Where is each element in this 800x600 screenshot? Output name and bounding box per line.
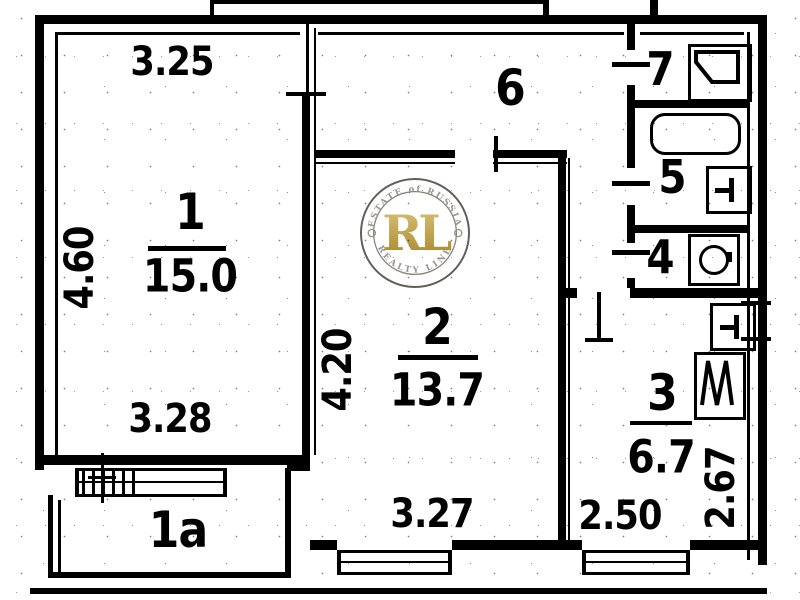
wall-room1-bottom: [35, 455, 310, 465]
pantry-basin-icon: [688, 44, 752, 102]
window-room2-top: [337, 550, 452, 553]
window-room3-post-l: [582, 550, 586, 575]
sink-icon: [706, 166, 752, 214]
sink-tap-arm: [715, 188, 731, 193]
dim-room1-bottom: 3.28: [128, 396, 211, 442]
facade-line: [30, 588, 767, 594]
wall-top-inner-line-b: [318, 32, 624, 35]
wall-column-left-d: [627, 278, 635, 288]
wall-kitchen-top-b: [630, 288, 758, 298]
window-room3-bottom: [582, 572, 690, 575]
wall-column-left-c: [627, 205, 635, 243]
wall-top-offset-line: [210, 0, 547, 4]
balcony-wall-right: [285, 468, 291, 578]
wall-room2-top-a: [316, 150, 455, 158]
balcony-window-hatch: [132, 470, 135, 496]
balcony-wall-left: [48, 495, 53, 578]
wall-room5-room4: [627, 225, 747, 233]
window-room2-post-l: [337, 550, 341, 575]
washing-machine-icon: [688, 234, 740, 286]
wall-column-left-b: [627, 85, 635, 168]
room5-number: 5: [658, 150, 685, 204]
room1-number: 1: [175, 183, 205, 241]
balcony-window-mid: [75, 481, 227, 483]
balcony-window-bottom: [75, 494, 227, 497]
balcony-window-hatch: [82, 470, 85, 496]
wall-column-left-a: [627, 23, 635, 50]
wall-room2-top-inner-a: [316, 162, 455, 164]
wall-room1-right-doorway: [306, 23, 309, 95]
room3-number: 3: [647, 364, 677, 422]
tick-room2-top-wall: [494, 136, 498, 172]
dim-room1-left: 4.60: [57, 226, 103, 309]
room3-area: 6.7: [627, 431, 695, 484]
balcony-window-hatch: [112, 470, 115, 496]
door-leaf-room4: [612, 250, 650, 255]
balcony-wall-left-inner: [58, 500, 61, 572]
washing-machine-drum: [699, 245, 729, 275]
balcony-window-post-l: [75, 468, 79, 497]
wall-bottom-a: [310, 540, 337, 550]
wall-top-stub-b: [650, 0, 658, 15]
wall-top-offset-stub-left: [210, 0, 214, 15]
stamp-monogram: RL: [382, 205, 452, 262]
wall-top-stub-a: [543, 0, 549, 15]
wall-room1-right: [302, 95, 310, 465]
dim-room3-bottom: 2.50: [578, 493, 661, 539]
room1a-number: 1a: [149, 501, 208, 559]
room2-number: 2: [422, 298, 452, 356]
wall-corridor-left: [558, 150, 566, 540]
room7-number: 7: [646, 42, 673, 96]
dim-room2-left: 4.20: [315, 328, 361, 411]
door-leaf-room7: [612, 62, 650, 67]
wall-room2-top-b: [493, 150, 567, 158]
balcony-window-hatch: [92, 470, 95, 496]
door-leaf-kitchen-h: [585, 338, 613, 342]
room4-number: 4: [646, 230, 673, 284]
washing-machine-dot: [727, 252, 732, 262]
wall-corridor-left-inner: [568, 158, 570, 540]
tick-room1-wall: [286, 92, 326, 96]
balcony-window-top: [75, 468, 227, 471]
balcony-wall-bottom: [48, 572, 291, 578]
door-leaf-kitchen-v: [597, 292, 601, 342]
bathtub-icon: [650, 113, 741, 155]
stove-icon: [694, 352, 746, 420]
window-room2-post-r: [448, 550, 452, 575]
wall-right: [758, 15, 767, 565]
kitchen-sink-icon: [710, 303, 756, 351]
room6-number: 6: [495, 59, 525, 117]
dim-room3-right: 2.67: [698, 446, 744, 529]
balcony-window-hatch: [122, 470, 125, 496]
floor-plan-sheet: 1 15.0 1a 2 13.7 3 6.7 4 5 6 7 3.25 4.60…: [0, 0, 800, 600]
door-leaf-room5: [612, 181, 650, 186]
realty-watermark-stamp: ESTATE of RUSSIA REALTY LINE RL: [352, 170, 478, 296]
wall-top-inner-line-a: [58, 32, 300, 35]
wall-kitchen-top-a: [558, 288, 577, 298]
dim-room2-bottom: 3.27: [390, 491, 473, 537]
wall-top: [35, 15, 767, 24]
window-room3-top: [582, 550, 690, 553]
window-room2-mid: [337, 561, 452, 563]
wall-room2-top-inner-b: [493, 162, 567, 164]
room2-area: 13.7: [390, 364, 484, 417]
wall-bottom-b: [452, 540, 582, 550]
wall-top-inner-line-c: [640, 32, 744, 35]
window-room3-mid: [582, 561, 690, 563]
wall-left: [35, 15, 44, 470]
dim-room1-top: 3.25: [130, 39, 213, 85]
dim-tick-balcony-bar: [88, 476, 116, 479]
balcony-window-post-r: [223, 468, 227, 497]
wall-bottom-c: [690, 540, 767, 550]
kitchen-sink-tap-arm: [720, 325, 736, 330]
room1-area: 15.0: [143, 250, 237, 303]
window-room2-bottom: [337, 572, 452, 575]
window-room3-post-r: [686, 550, 690, 575]
